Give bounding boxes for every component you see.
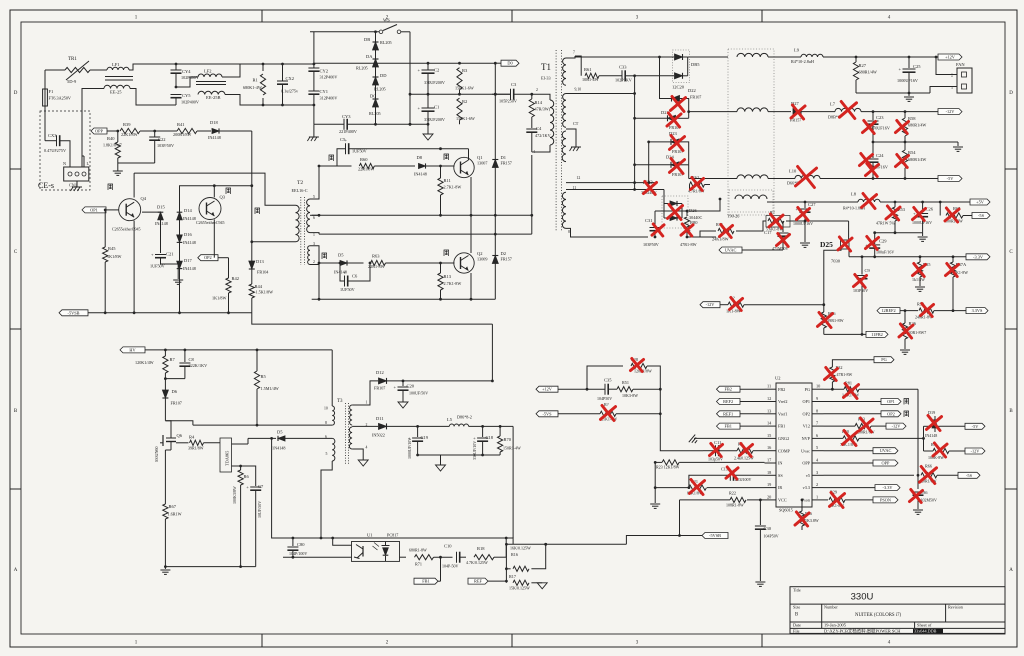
svg-text:File: File — [793, 629, 800, 634]
svg-text:C9: C9 — [865, 268, 871, 273]
svg-text:+: + — [394, 385, 397, 390]
svg-text:D86*8-2: D86*8-2 — [457, 415, 472, 420]
svg-text:R13: R13 — [444, 274, 452, 279]
svg-text:FB1: FB1 — [422, 579, 429, 584]
svg-text:1K1/8W: 1K1/8W — [212, 296, 226, 301]
svg-text:12REF2: 12REF2 — [881, 308, 895, 313]
svg-text:2: 2 — [313, 260, 315, 264]
svg-text:+: + — [246, 485, 249, 490]
svg-text:2.7K1-8W: 2.7K1-8W — [444, 281, 462, 286]
svg-text:C2: C2 — [434, 68, 439, 73]
svg-text:T1: T1 — [541, 62, 551, 72]
svg-text:C33: C33 — [619, 65, 627, 70]
svg-text:FAN: FAN — [956, 62, 965, 67]
svg-text:OP2: OP2 — [887, 411, 895, 416]
svg-text:2: 2 — [386, 641, 389, 646]
svg-text:-5VS: -5VS — [542, 411, 552, 416]
svg-text:IR: IR — [778, 485, 782, 490]
svg-text:C19: C19 — [421, 435, 429, 440]
svg-text:REF2: REF2 — [723, 399, 733, 404]
svg-text:T3: T3 — [337, 399, 343, 404]
svg-text:RL205: RL205 — [380, 40, 392, 45]
svg-text:B: B — [1009, 409, 1013, 414]
svg-text:B: B — [795, 613, 798, 618]
svg-text:REF: REF — [474, 579, 482, 584]
svg-text:UVAC: UVAC — [725, 248, 737, 253]
svg-text:FB2: FB2 — [724, 387, 731, 392]
svg-text:R66: R66 — [925, 464, 932, 469]
svg-text:R40: R40 — [107, 136, 115, 141]
svg-text:6: 6 — [325, 435, 327, 439]
svg-text:10K3-8W: 10K3-8W — [622, 393, 638, 398]
svg-text:R?: R? — [604, 402, 609, 407]
svg-text:13009: 13009 — [477, 257, 487, 262]
svg-text:D5: D5 — [338, 253, 344, 258]
svg-text:REF1: REF1 — [723, 411, 733, 416]
svg-text:2.7K1-8W: 2.7K1-8W — [444, 185, 462, 190]
svg-text:D15: D15 — [157, 205, 165, 210]
svg-text:EEL16-C: EEL16-C — [292, 188, 308, 193]
svg-text:CX3: CX3 — [48, 133, 57, 138]
svg-text:R16: R16 — [511, 552, 518, 557]
svg-text:C21: C21 — [166, 252, 174, 257]
svg-text:R67: R67 — [169, 504, 177, 509]
svg-text:7: 7 — [573, 51, 575, 55]
svg-text:PG: PG — [805, 387, 810, 392]
svg-text:D12: D12 — [376, 370, 384, 375]
svg-text:+: + — [418, 68, 421, 73]
svg-text:VCC: VCC — [778, 498, 787, 503]
svg-text:+: + — [473, 436, 476, 441]
svg-text:20R1-8W7: 20R1-8W7 — [909, 330, 927, 335]
svg-text:SSS2N60: SSS2N60 — [154, 446, 159, 462]
svg-text:D:\XZY-PCB文档资料\串联POWER SCH: D:\XZY-PCB文档资料\串联POWER SCH — [824, 628, 901, 635]
svg-text:EE-25B: EE-25B — [206, 95, 221, 100]
svg-text:V12: V12 — [803, 424, 810, 429]
svg-text:CY1: CY1 — [320, 89, 329, 94]
svg-text:5: 5 — [313, 195, 315, 199]
svg-text:C1: C1 — [434, 105, 439, 110]
svg-text:47R1W 5%: 47R1W 5% — [876, 221, 895, 226]
svg-text:150R1-4W: 150R1-4W — [503, 446, 521, 451]
svg-text:103P/50V: 103P/50V — [157, 143, 174, 148]
svg-text:12: 12 — [577, 176, 581, 180]
svg-text:C4: C4 — [536, 126, 542, 131]
svg-text:+: + — [899, 67, 902, 72]
svg-text:IN4148: IN4148 — [208, 135, 221, 140]
svg-text:C7: C7 — [258, 484, 264, 489]
svg-text:HV: HV — [129, 347, 136, 352]
svg-text:39R1/8W: 39R1/8W — [188, 446, 204, 451]
svg-text:-5V: -5V — [947, 176, 955, 181]
svg-text:CX2: CX2 — [286, 76, 295, 81]
svg-text:FR107: FR107 — [171, 401, 182, 406]
svg-text:C6: C6 — [352, 274, 358, 279]
svg-text:+5V: +5V — [976, 200, 985, 205]
svg-text:-5S: -5S — [966, 473, 973, 478]
svg-text:1.8K1/8W7: 1.8K1/8W7 — [103, 143, 122, 148]
svg-text:C25: C25 — [913, 64, 921, 69]
svg-text:GNG2: GNG2 — [778, 436, 789, 441]
svg-text:L10: L10 — [789, 169, 797, 174]
svg-text:UVAC: UVAC — [880, 448, 892, 453]
svg-text:16K/0.125W: 16K/0.125W — [510, 546, 531, 551]
svg-text:SS: SS — [778, 473, 783, 478]
svg-text:7: 7 — [816, 421, 819, 426]
svg-text:3: 3 — [636, 16, 639, 21]
svg-text:R61: R61 — [584, 67, 592, 72]
svg-text:104P-50V: 104P-50V — [442, 564, 459, 569]
svg-text:IN4148: IN4148 — [183, 266, 196, 271]
svg-text:+: + — [151, 252, 154, 257]
svg-text:1: 1 — [366, 401, 368, 405]
svg-text:-5VSB: -5VSB — [68, 310, 80, 315]
svg-text:Q1: Q1 — [477, 155, 483, 160]
svg-text:B: B — [14, 409, 18, 414]
svg-text:DA: DA — [366, 54, 373, 59]
svg-text:F1: F1 — [49, 89, 54, 94]
svg-text:R51: R51 — [622, 380, 629, 385]
svg-text:33x644.DDB: 33x644.DDB — [914, 629, 937, 634]
svg-text:10R1-4W: 10R1-4W — [582, 77, 599, 82]
svg-text:OPP: OPP — [95, 129, 103, 134]
svg-text:1: 1 — [816, 494, 818, 499]
svg-text:-5S: -5S — [978, 213, 985, 218]
svg-text:R44: R44 — [255, 284, 263, 289]
svg-text:200R1/8W: 200R1/8W — [173, 132, 191, 137]
svg-text:13: 13 — [767, 408, 771, 413]
svg-text:221P400V: 221P400V — [339, 129, 357, 134]
svg-text:DB5: DB5 — [691, 62, 700, 67]
svg-text:2: 2 — [816, 482, 818, 487]
svg-text:330UF200V: 330UF200V — [424, 80, 445, 85]
svg-text:v3.3: v3.3 — [803, 485, 810, 490]
svg-text:Q3: Q3 — [220, 195, 226, 200]
svg-text:OP2: OP2 — [204, 255, 212, 260]
svg-text:R39: R39 — [123, 122, 131, 127]
svg-text:D5: D5 — [277, 430, 283, 435]
svg-text:D: D — [14, 91, 18, 96]
svg-text:LF2: LF2 — [204, 69, 212, 74]
svg-text:680R1/4W: 680R1/4W — [908, 157, 926, 162]
svg-text:4: 4 — [888, 641, 891, 646]
svg-text:105P250V: 105P250V — [499, 99, 517, 104]
svg-text:11: 11 — [767, 384, 771, 389]
svg-text:D25: D25 — [820, 240, 833, 249]
svg-text:9,10: 9,10 — [575, 88, 582, 93]
svg-text:PSON: PSON — [880, 497, 891, 502]
svg-text:+12V: +12V — [542, 387, 553, 392]
svg-text:FB2: FB2 — [778, 387, 785, 392]
svg-text:LF1: LF1 — [112, 62, 120, 67]
svg-text:13007: 13007 — [477, 161, 487, 166]
svg-text:1k1/4W: 1k1/4W — [912, 277, 925, 282]
svg-text:T90-26: T90-26 — [727, 214, 739, 219]
svg-text:v5: v5 — [806, 473, 810, 478]
svg-text:U2: U2 — [775, 376, 781, 381]
svg-text:R17: R17 — [509, 574, 516, 579]
svg-text:DC: DC — [370, 94, 376, 99]
svg-text:120K1/4W: 120K1/4W — [135, 360, 154, 365]
svg-text:8: 8 — [568, 230, 570, 234]
svg-text:D11: D11 — [376, 416, 384, 421]
svg-text:10: 10 — [324, 407, 328, 411]
svg-text:15: 15 — [767, 433, 771, 438]
svg-text:5D-9: 5D-9 — [67, 79, 77, 84]
svg-text:19: 19 — [767, 482, 771, 487]
svg-text:L9: L9 — [794, 48, 800, 53]
svg-text:IN4148: IN4148 — [183, 216, 196, 221]
svg-text:C31: C31 — [645, 218, 653, 223]
svg-text:FB1: FB1 — [778, 424, 785, 429]
svg-text:22K1/8W: 22K1/8W — [121, 132, 138, 137]
svg-text:C22: C22 — [158, 137, 166, 142]
svg-text:SQ6015: SQ6015 — [779, 508, 793, 513]
svg-text:150K1-6W: 150K1-6W — [455, 86, 474, 91]
svg-text:Sheet of: Sheet of — [917, 623, 932, 628]
svg-text:10: 10 — [816, 384, 820, 389]
svg-text:1000UF16V: 1000UF16V — [897, 78, 918, 83]
svg-text:10UF/50V: 10UF/50V — [257, 501, 262, 518]
svg-text:22R1/8W: 22R1/8W — [358, 167, 374, 172]
svg-text:C2655eitherC945: C2655eitherC945 — [112, 227, 140, 232]
svg-text:4.7K/0.125W: 4.7K/0.125W — [466, 560, 488, 565]
svg-text:C: C — [14, 250, 18, 255]
svg-text:R41: R41 — [177, 122, 185, 127]
svg-text:680R1/4W: 680R1/4W — [859, 70, 877, 75]
svg-text:680R1-8W: 680R1-8W — [409, 548, 427, 553]
svg-text:NVP: NVP — [802, 436, 811, 441]
svg-text:C2655eitherC945: C2655eitherC945 — [196, 220, 224, 225]
svg-text:1UF50V: 1UF50V — [150, 264, 165, 269]
svg-text:IN5022: IN5022 — [372, 433, 385, 438]
svg-text:20: 20 — [767, 494, 771, 499]
svg-text:+: + — [418, 106, 421, 111]
svg-text:8: 8 — [325, 421, 327, 425]
svg-text:100UF/50V: 100UF/50V — [409, 391, 428, 396]
svg-text:312P400V: 312P400V — [320, 75, 338, 80]
svg-text:D6: D6 — [172, 389, 178, 394]
svg-text:470UF16V: 470UF16V — [871, 126, 890, 131]
svg-text:CY4: CY4 — [182, 69, 191, 74]
svg-text:12: 12 — [767, 396, 771, 401]
svg-text:OP2: OP2 — [803, 411, 810, 416]
svg-text:NUITEK (COLORS i7): NUITEK (COLORS i7) — [855, 613, 902, 618]
svg-text:47R1-8W: 47R1-8W — [680, 242, 697, 247]
svg-text:D0: D0 — [507, 61, 512, 66]
svg-text:1: 1 — [951, 85, 953, 90]
svg-text:CY5: CY5 — [182, 93, 191, 98]
svg-text:C5: C5 — [340, 137, 346, 142]
svg-text:150K1-6W: 150K1-6W — [456, 116, 475, 121]
svg-text:FR157: FR157 — [501, 257, 512, 262]
svg-text:R5: R5 — [261, 374, 267, 379]
svg-text:R4: R4 — [189, 435, 195, 440]
svg-text:EE-25: EE-25 — [110, 90, 122, 95]
svg-text:R6: R6 — [244, 474, 250, 479]
svg-text:472/1KV: 472/1KV — [535, 133, 551, 138]
svg-text:C23: C23 — [876, 115, 884, 120]
svg-text:C18: C18 — [486, 435, 494, 440]
svg-text:104P50V: 104P50V — [764, 534, 779, 539]
svg-text:OPP: OPP — [802, 461, 810, 466]
svg-text:R70: R70 — [504, 437, 512, 442]
svg-text:D2: D2 — [501, 251, 507, 256]
svg-text:-12V: -12V — [946, 109, 956, 114]
svg-text:0.1uf275v: 0.1uf275v — [281, 89, 299, 94]
svg-text:6: 6 — [313, 216, 315, 220]
svg-text:COMP: COMP — [778, 448, 791, 453]
svg-text:312P400V: 312P400V — [320, 96, 338, 101]
svg-text:D22: D22 — [688, 88, 696, 93]
svg-text:OP1: OP1 — [887, 399, 895, 404]
svg-text:DD: DD — [380, 73, 387, 78]
svg-text:C27: C27 — [808, 202, 816, 207]
svg-text:FB1: FB1 — [724, 424, 731, 429]
svg-text:CT: CT — [573, 121, 579, 126]
svg-text:C: C — [1009, 250, 1013, 255]
svg-text:Q6: Q6 — [177, 433, 183, 438]
svg-text:C8: C8 — [189, 357, 195, 362]
svg-text:R1: R1 — [253, 78, 258, 83]
svg-text:5: 5 — [816, 445, 818, 450]
svg-text:Uvac: Uvac — [801, 448, 810, 453]
svg-text:RL205: RL205 — [356, 66, 368, 71]
svg-text:102P400V: 102P400V — [181, 100, 199, 105]
svg-text:330U: 330U — [851, 592, 874, 603]
svg-text:R27: R27 — [859, 63, 867, 68]
svg-text:Number: Number — [824, 605, 838, 610]
svg-text:OP1: OP1 — [90, 207, 98, 212]
svg-text:-3.3V: -3.3V — [883, 485, 894, 490]
svg-text:Revision: Revision — [948, 605, 964, 610]
svg-text:TDA865: TDA865 — [225, 451, 230, 466]
svg-text:OP1: OP1 — [803, 399, 810, 404]
svg-text:D1: D1 — [501, 155, 507, 160]
svg-text:FR107: FR107 — [690, 95, 701, 100]
svg-text:3: 3 — [636, 641, 639, 646]
svg-text:330UF200V: 330UF200V — [424, 117, 445, 122]
svg-text:D16: D16 — [184, 232, 192, 237]
svg-text:39R1-8W: 39R1-8W — [827, 318, 844, 323]
svg-text:16: 16 — [767, 445, 772, 450]
svg-text:1UF50V: 1UF50V — [352, 149, 367, 154]
svg-text:222K/1KV: 222K/1KV — [189, 363, 208, 368]
svg-text:103P50V: 103P50V — [643, 242, 659, 247]
svg-text:R7: R7 — [170, 357, 176, 362]
svg-text:18: 18 — [767, 470, 771, 475]
svg-text:D: D — [1009, 91, 1013, 96]
svg-text:1.6R1W: 1.6R1W — [168, 512, 182, 517]
svg-text:IN4148: IN4148 — [155, 221, 168, 226]
svg-text:L8: L8 — [851, 192, 857, 197]
svg-text:R4*10-2.8uH: R4*10-2.8uH — [791, 59, 814, 64]
svg-text:R71: R71 — [415, 562, 422, 567]
svg-text:D17: D17 — [184, 258, 192, 263]
svg-text:3: 3 — [816, 470, 818, 475]
svg-text:9: 9 — [816, 396, 818, 401]
svg-text:-3.3V: -3.3V — [973, 254, 984, 259]
svg-text:FR104: FR104 — [257, 270, 269, 275]
svg-text:-12V: -12V — [892, 424, 902, 429]
svg-text:3.3VS: 3.3VS — [972, 308, 983, 313]
svg-text:IN: IN — [778, 461, 782, 466]
svg-text:A: A — [14, 568, 18, 573]
svg-text:FR107: FR107 — [374, 386, 385, 391]
svg-text:L: L — [87, 161, 90, 166]
svg-text:Q2: Q2 — [477, 251, 483, 256]
svg-text:1000UF16V: 1000UF16V — [912, 220, 932, 225]
svg-text:-5V: -5V — [972, 424, 980, 429]
svg-text:EI-33: EI-33 — [541, 76, 551, 81]
svg-text:D14: D14 — [184, 208, 192, 213]
svg-text:R45: R45 — [108, 246, 116, 251]
svg-text:102M50V: 102M50V — [921, 498, 938, 503]
svg-text:R22: R22 — [729, 491, 736, 496]
svg-text:R14: R14 — [535, 100, 543, 105]
svg-text:-12V: -12V — [706, 302, 716, 307]
svg-text:Date: Date — [793, 623, 801, 628]
svg-text:Q4: Q4 — [141, 196, 147, 201]
svg-text:Vref1: Vref1 — [778, 411, 788, 416]
svg-text:D19: D19 — [928, 410, 935, 415]
svg-text:6: 6 — [816, 433, 819, 438]
svg-text:PC817: PC817 — [387, 533, 398, 538]
svg-text:17: 17 — [767, 458, 772, 463]
svg-text:47R/3W): 47R/3W) — [535, 107, 551, 112]
svg-text:100K-8W: 100K-8W — [928, 455, 944, 460]
svg-text:OPP: OPP — [882, 461, 890, 466]
svg-text:14: 14 — [767, 421, 772, 426]
svg-text:FT6.3A250V: FT6.3A250V — [49, 96, 71, 101]
svg-text:1K1/8W: 1K1/8W — [107, 254, 121, 259]
svg-text:C10: C10 — [444, 544, 452, 549]
svg-text:4: 4 — [816, 458, 819, 463]
svg-text:R11: R11 — [444, 178, 451, 183]
svg-text:1.5M1/4W: 1.5M1/4W — [261, 386, 279, 391]
svg-text:N: N — [63, 161, 66, 166]
svg-text:C35: C35 — [604, 378, 612, 383]
svg-text:+12V: +12V — [945, 55, 956, 60]
svg-text:CE-s: CE-s — [38, 181, 54, 190]
svg-text:IN4148: IN4148 — [183, 240, 196, 245]
svg-text:15K/0.125W: 15K/0.125W — [509, 586, 530, 591]
svg-text:L7: L7 — [830, 102, 836, 107]
svg-text:1: 1 — [135, 16, 138, 21]
svg-text:R23 12K1/8W: R23 12K1/8W — [656, 465, 680, 470]
svg-text:47R1-8W: 47R1-8W — [837, 372, 853, 377]
svg-text:1: 1 — [135, 641, 138, 646]
svg-text:1000UF/10V: 1000UF/10V — [407, 438, 412, 459]
svg-text:2: 2 — [536, 88, 538, 92]
svg-text:1: 1 — [313, 233, 315, 237]
svg-text:D18: D18 — [210, 120, 218, 125]
svg-text:C3: C3 — [511, 82, 517, 87]
svg-text:D8: D8 — [417, 155, 423, 160]
svg-text:330UF/10V: 330UF/10V — [472, 441, 477, 460]
svg-text:IN4148: IN4148 — [414, 172, 427, 177]
svg-text:11FB2: 11FB2 — [871, 332, 883, 337]
svg-text:R42: R42 — [232, 276, 240, 281]
svg-text:T2: T2 — [297, 180, 303, 186]
svg-text:100K3/8W: 100K3/8W — [232, 486, 237, 504]
svg-text:R63: R63 — [372, 254, 380, 259]
svg-text:CY2: CY2 — [320, 69, 329, 74]
svg-text:104P50V: 104P50V — [597, 396, 612, 401]
svg-text:12C20: 12C20 — [672, 85, 685, 90]
svg-text:Vref2: Vref2 — [778, 399, 788, 404]
svg-text:C80: C80 — [297, 542, 305, 547]
